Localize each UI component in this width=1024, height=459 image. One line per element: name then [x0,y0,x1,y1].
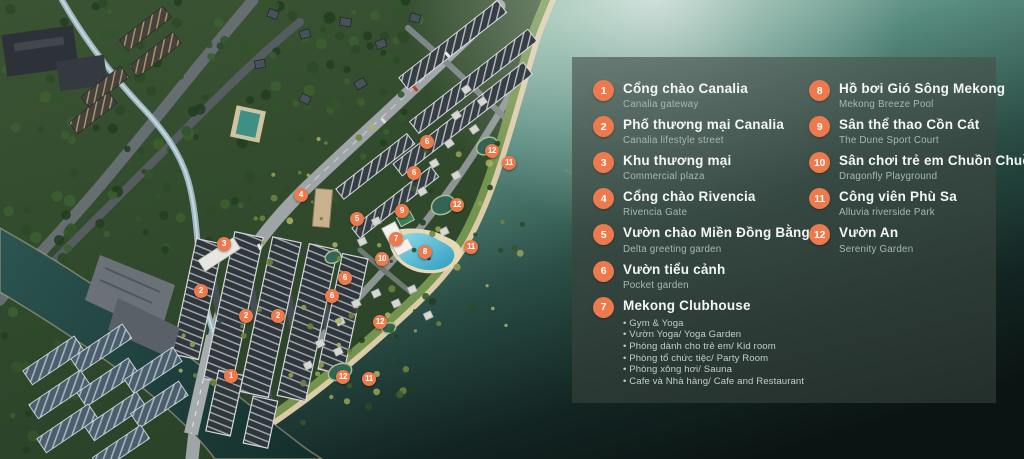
map-marker-2: 2 [194,284,208,298]
legend-number: 6 [601,265,607,277]
legend-item-subtitle: Canalia lifestyle street [623,135,784,146]
legend-number: 3 [601,157,607,169]
legend-bullet: Vườn Yoga/ Yoga Garden [623,329,804,341]
legend-item-title: Phố thương mại Canalia [623,117,784,132]
legend-item-subtitle: The Dune Sport Court [839,135,980,146]
legend-number: 12 [814,229,825,241]
legend-column-2: 8 Hồ bơi Gió Sông Mekong Mekong Breeze P… [809,80,996,403]
map-marker-5: 5 [350,212,364,226]
map-marker-11: 11 [502,156,516,170]
legend-item: 12 Vườn An Serenity Garden [809,224,996,254]
legend-item-subtitle: Canalia gateway [623,99,748,110]
legend-number: 5 [601,229,607,241]
map-marker-1: 1 [224,369,238,383]
legend-item: 6 Vườn tiểu cảnh Pocket garden [593,261,809,291]
legend-number: 1 [601,85,607,97]
legend-number-badge: 4 [593,188,614,209]
legend-number-badge: 12 [809,224,830,245]
legend-number-badge: 5 [593,224,614,245]
legend-item: 7 Mekong Clubhouse Gym & YogaVườn Yoga/ … [593,297,809,388]
legend-item-subtitle: Alluvia riverside Park [839,207,957,218]
map-marker-10: 10 [375,252,389,266]
legend-number-badge: 10 [809,152,830,173]
legend-number-badge: 11 [809,188,830,209]
legend-item: 10 Sân chơi trẻ em Chuồn Chuồn Dragonfly… [809,152,996,182]
legend-item: 5 Vườn chào Miền Đồng Bằng Delta greetin… [593,224,809,254]
legend-number: 11 [814,193,825,205]
legend-item-subtitle: Mekong Breeze Pool [839,99,996,110]
legend-panel: 1 Cổng chào Canalia Canalia gateway 2 Ph… [572,57,996,403]
legend-item: 3 Khu thương mại Commercial plaza [593,152,809,182]
map-marker-12: 12 [450,198,464,212]
legend-number: 7 [601,301,607,313]
map-marker-11: 11 [362,372,376,386]
legend-item-bullets: Gym & YogaVườn Yoga/ Yoga GardenPhòng dà… [623,318,804,388]
map-marker-4: 4 [294,188,308,202]
legend-item-title: Sân thể thao Cồn Cát [839,117,980,132]
map-marker-9: 9 [395,204,409,218]
legend-number-badge: 6 [593,261,614,282]
legend-item-title: Cổng chào Rivencia [623,189,756,204]
legend-item-subtitle: Pocket garden [623,280,725,291]
map-marker-12: 12 [485,144,499,158]
legend-number: 8 [817,85,823,97]
legend-item-subtitle: Dragonfly Playground [839,171,996,182]
legend-bullet: Gym & Yoga [623,318,804,330]
legend-item-subtitle: Serenity Garden [839,244,913,255]
legend-bullet: Cafe và Nhà hàng/ Cafe and Restaurant [623,376,804,388]
legend-item-title: Công viên Phù Sa [839,189,957,204]
legend-bullet: Phòng dành cho trẻ em/ Kid room [623,341,804,353]
legend-number: 2 [601,121,607,133]
legend-item: 11 Công viên Phù Sa Alluvia riverside Pa… [809,188,996,218]
map-marker-12: 12 [336,370,350,384]
legend-item: 4 Cổng chào Rivencia Rivencia Gate [593,188,809,218]
legend-item: 8 Hồ bơi Gió Sông Mekong Mekong Breeze P… [809,80,996,110]
legend-item-title: Khu thương mại [623,153,731,168]
legend-number: 4 [601,193,607,205]
legend-item: 2 Phố thương mại Canalia Canalia lifesty… [593,116,809,146]
legend-item-subtitle: Rivencia Gate [623,207,756,218]
map-marker-2: 2 [271,309,285,323]
map-marker-6: 6 [325,289,339,303]
legend-number-badge: 8 [809,80,830,101]
legend-item-subtitle: Commercial plaza [623,171,731,182]
map-marker-12: 12 [373,315,387,329]
map-marker-11: 11 [464,240,478,254]
legend-item-title: Vườn chào Miền Đồng Bằng [623,225,809,240]
legend-item: 1 Cổng chào Canalia Canalia gateway [593,80,809,110]
map-marker-6: 6 [420,135,434,149]
legend-number: 10 [814,157,825,169]
legend-bullet: Phòng tổ chức tiệc/ Party Room [623,353,804,365]
legend-column-1: 1 Cổng chào Canalia Canalia gateway 2 Ph… [593,80,809,403]
map-marker-3: 3 [217,237,231,251]
map-marker-6: 6 [407,166,421,180]
legend-item-title: Mekong Clubhouse [623,298,804,313]
legend-number-badge: 2 [593,116,614,137]
map-marker-6: 6 [338,271,352,285]
legend-number-badge: 1 [593,80,614,101]
legend-item-title: Sân chơi trẻ em Chuồn Chuồn [839,153,996,168]
legend-item-title: Hồ bơi Gió Sông Mekong [839,81,996,96]
legend-number-badge: 7 [593,297,614,318]
legend-number-badge: 3 [593,152,614,173]
masterplan-screenshot: 122234566667891011111112121212 1 Cổng ch… [0,0,1024,459]
map-marker-7: 7 [389,232,403,246]
legend-item-title: Vườn An [839,225,913,240]
legend-item: 9 Sân thể thao Cồn Cát The Dune Sport Co… [809,116,996,146]
legend-number-badge: 9 [809,116,830,137]
legend-item-title: Cổng chào Canalia [623,81,748,96]
legend-bullet: Phòng xông hơi/ Sauna [623,364,804,376]
legend-number: 9 [817,121,823,133]
legend-item-title: Vườn tiểu cảnh [623,262,725,277]
legend-item-subtitle: Delta greeting garden [623,244,809,255]
map-marker-2: 2 [239,309,253,323]
map-marker-8: 8 [418,245,432,259]
